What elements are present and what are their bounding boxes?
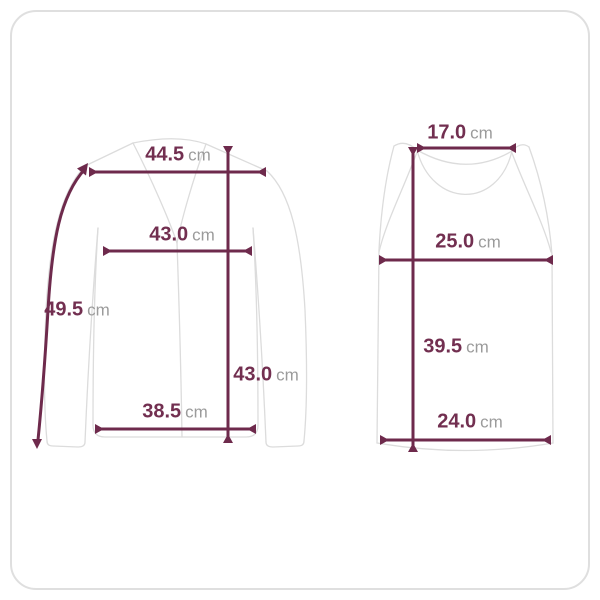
measurement-unit: cm [276, 366, 299, 386]
tank-hem-dimension-line [380, 435, 551, 445]
cardigan-length-measurement: 43.0 cm [233, 364, 299, 387]
measurement-unit: cm [185, 403, 208, 423]
measurement-value: 25.0 [435, 231, 474, 254]
cardigan-hem-dimension-line [95, 424, 256, 434]
cardigan-shoulder-dimension-line [89, 167, 266, 177]
tank-top-outline [377, 143, 553, 450]
cardigan-chest-measurement: 43.0 cm [149, 224, 215, 247]
measurement-value: 43.0 [233, 364, 272, 387]
measurement-value: 38.5 [142, 401, 181, 424]
measurement-unit: cm [87, 301, 110, 321]
tank-chest-dimension-line [379, 255, 553, 265]
measurement-value: 44.5 [145, 144, 184, 167]
cardigan-hem-measurement: 38.5 cm [142, 401, 208, 424]
measurement-unit: cm [466, 338, 489, 358]
tank-shoulder-measurement: 17.0 cm [427, 122, 493, 145]
measurement-unit: cm [192, 226, 215, 246]
tank-length-measurement: 39.5 cm [423, 336, 489, 359]
measurement-value: 49.5 [44, 299, 83, 322]
measurement-unit: cm [478, 233, 501, 253]
tank-shoulder-dimension-line [417, 143, 516, 153]
measurement-unit: cm [188, 146, 211, 166]
tank-chest-measurement: 25.0 cm [435, 231, 501, 254]
measurement-value: 43.0 [149, 224, 188, 247]
measurement-value: 24.0 [437, 411, 476, 434]
measurement-value: 17.0 [427, 122, 466, 145]
tank-hem-measurement: 24.0 cm [437, 411, 503, 434]
measurement-unit: cm [470, 124, 493, 144]
cardigan-sleeve-measurement: 49.5 cm [44, 299, 110, 322]
measurement-value: 39.5 [423, 336, 462, 359]
measurement-unit: cm [480, 413, 503, 433]
size-guide-panel: 44.5 cm 43.0 cm 49.5 cm 43.0 cm 38.5 cm … [0, 0, 600, 600]
cardigan-shoulder-measurement: 44.5 cm [145, 144, 211, 167]
cardigan-length-dimension-line [223, 146, 233, 443]
tank-length-dimension-line [408, 147, 418, 452]
